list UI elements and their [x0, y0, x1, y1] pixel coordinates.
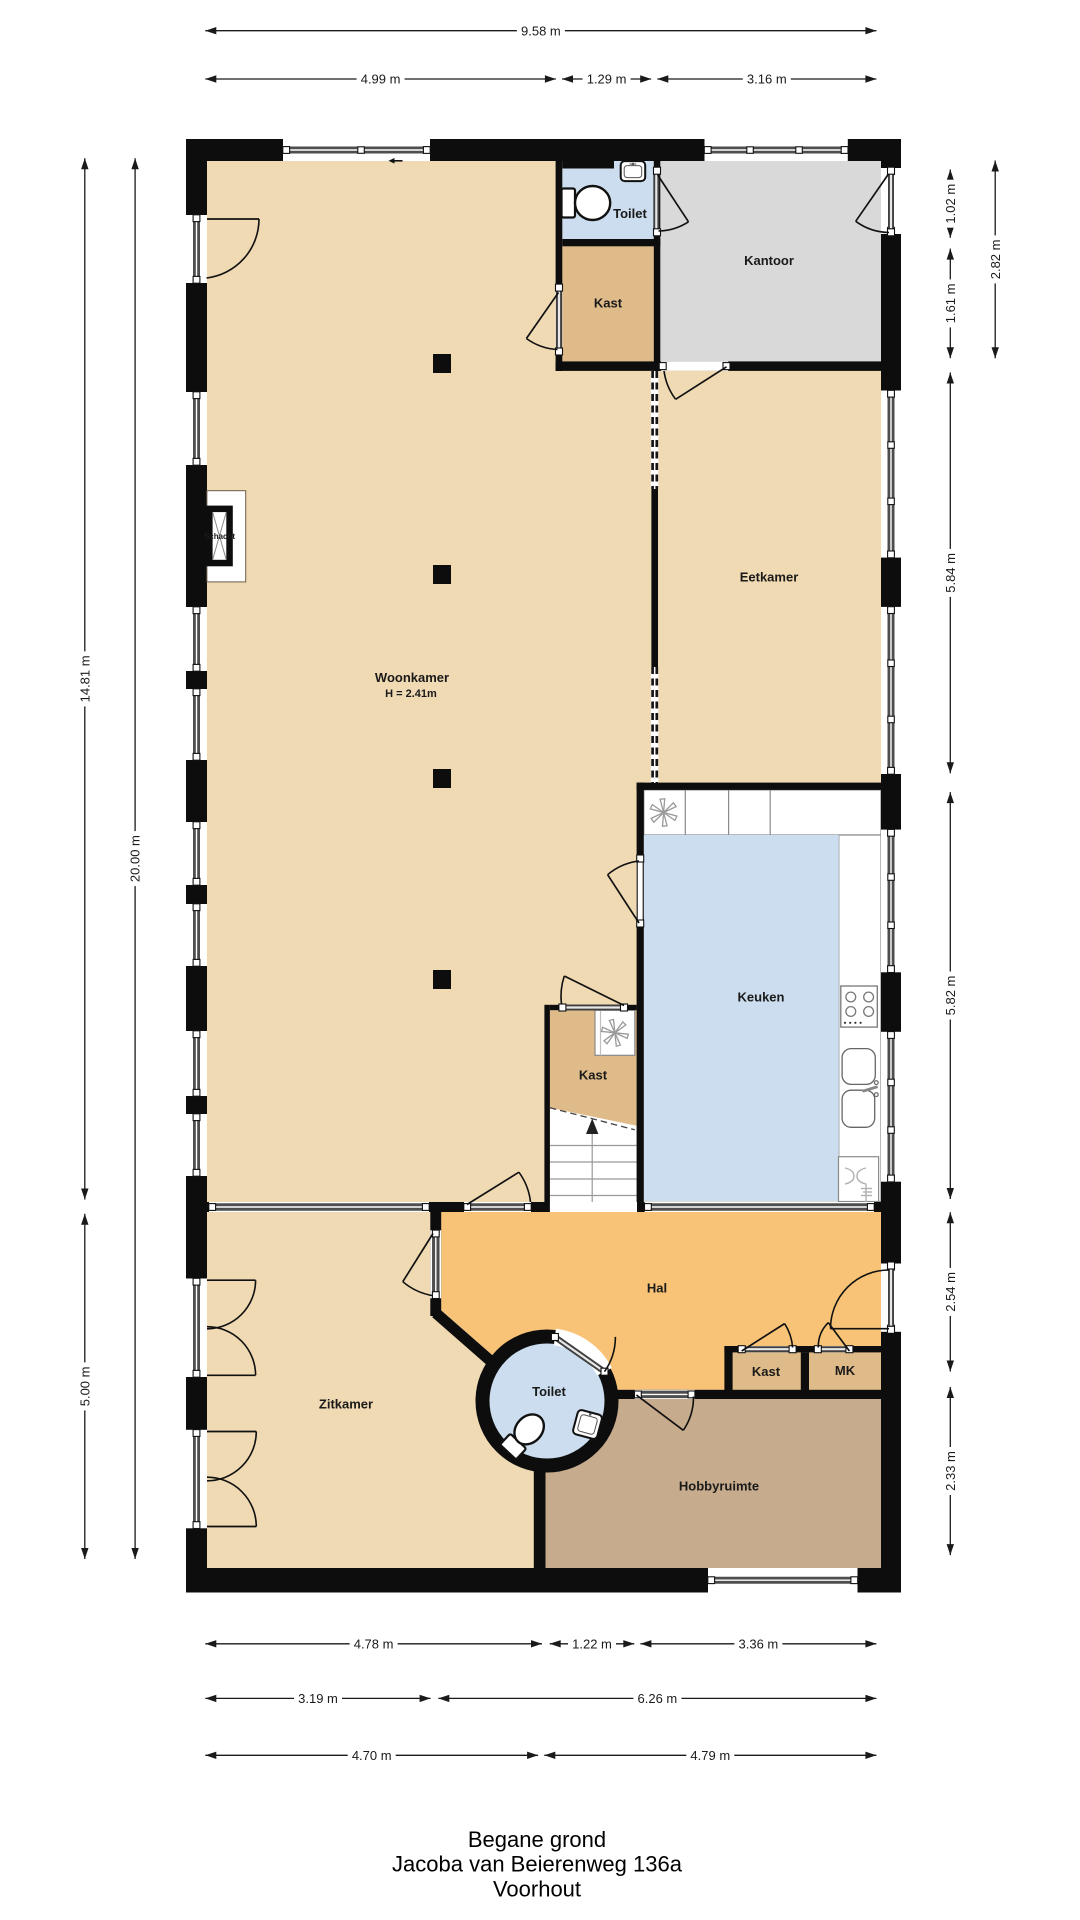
svg-text:MK: MK [835, 1363, 856, 1378]
svg-text:4.70 m: 4.70 m [352, 1748, 392, 1763]
svg-text:4.79 m: 4.79 m [690, 1748, 730, 1763]
svg-text:2.82 m: 2.82 m [988, 240, 1003, 280]
svg-text:3.16 m: 3.16 m [747, 72, 787, 87]
svg-text:Toilet: Toilet [613, 206, 647, 221]
svg-text:Hobbyruimte: Hobbyruimte [679, 1479, 759, 1494]
svg-text:5.00 m: 5.00 m [77, 1367, 92, 1407]
svg-text:Kast: Kast [579, 1068, 608, 1083]
svg-text:Keuken: Keuken [738, 990, 785, 1005]
svg-text:1.61 m: 1.61 m [943, 284, 958, 324]
svg-text:Begane grond: Begane grond [468, 1827, 606, 1852]
svg-text:1.22 m: 1.22 m [572, 1636, 612, 1651]
svg-text:3.19 m: 3.19 m [298, 1691, 338, 1706]
svg-text:Kast: Kast [594, 296, 623, 311]
svg-text:2.33 m: 2.33 m [943, 1451, 958, 1491]
svg-text:Kast: Kast [752, 1364, 781, 1379]
svg-text:4.78 m: 4.78 m [354, 1636, 394, 1651]
svg-text:Jacoba van Beierenweg 136a: Jacoba van Beierenweg 136a [392, 1852, 683, 1877]
svg-text:H = 2.41m: H = 2.41m [385, 688, 437, 700]
svg-text:Eetkamer: Eetkamer [740, 570, 799, 585]
svg-text:4.99 m: 4.99 m [361, 72, 401, 87]
svg-text:5.84 m: 5.84 m [943, 553, 958, 593]
svg-text:3.36 m: 3.36 m [739, 1636, 779, 1651]
svg-text:5.82 m: 5.82 m [943, 976, 958, 1016]
svg-text:Zitkamer: Zitkamer [319, 1397, 373, 1412]
svg-text:2.54 m: 2.54 m [943, 1272, 958, 1312]
svg-text:1.29 m: 1.29 m [587, 72, 627, 87]
svg-text:Kantoor: Kantoor [744, 253, 794, 268]
svg-text:14.81 m: 14.81 m [77, 655, 92, 702]
svg-text:Woonkamer: Woonkamer [375, 670, 449, 685]
svg-text:Toilet: Toilet [532, 1384, 566, 1399]
svg-text:Voorhout: Voorhout [493, 1876, 581, 1901]
svg-text:9.58 m: 9.58 m [521, 23, 561, 38]
svg-text:6.26 m: 6.26 m [638, 1691, 678, 1706]
svg-text:20.00 m: 20.00 m [128, 835, 143, 882]
svg-text:Schacht: Schacht [204, 532, 235, 541]
svg-text:1.02 m: 1.02 m [943, 184, 958, 224]
svg-text:Hal: Hal [647, 1281, 667, 1296]
